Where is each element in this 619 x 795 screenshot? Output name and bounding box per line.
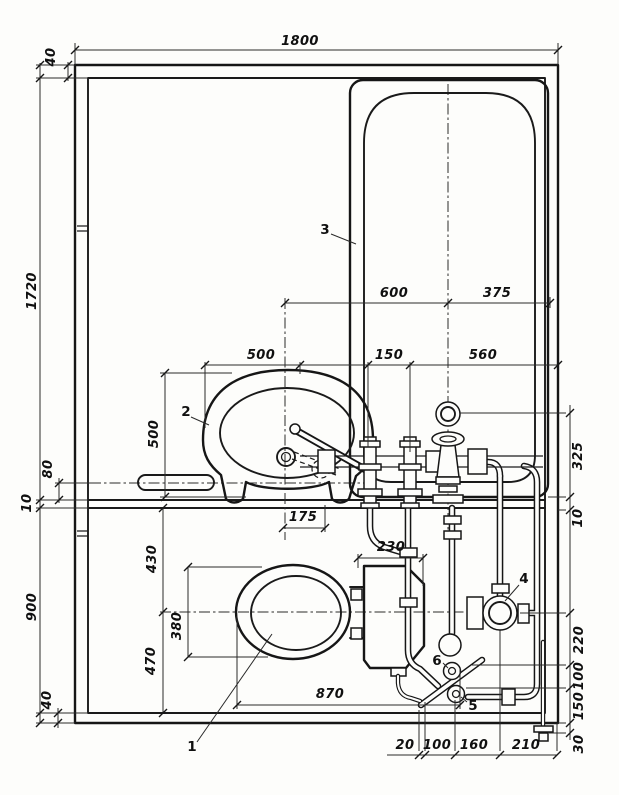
valve-6-body bbox=[444, 663, 461, 680]
ball-valve-body bbox=[439, 634, 461, 656]
basin-drain-inner bbox=[282, 453, 291, 462]
dim-30: 30 bbox=[572, 735, 587, 754]
floor-drain bbox=[467, 596, 529, 630]
dim-wall-bottom: 40 bbox=[40, 691, 55, 711]
dim-partition: 10 bbox=[20, 494, 35, 513]
callout-5-valve: 5 bbox=[468, 698, 477, 714]
extension-lines bbox=[36, 43, 566, 751]
pipe-union bbox=[468, 449, 487, 474]
dim-870: 870 bbox=[316, 687, 344, 702]
dim-600: 600 bbox=[380, 286, 408, 301]
pipe-union bbox=[400, 598, 417, 607]
cistern bbox=[364, 566, 424, 668]
dim-150: 150 bbox=[375, 348, 403, 363]
dim-175: 175 bbox=[289, 510, 317, 525]
pipe-union bbox=[502, 689, 515, 705]
callout-6-valve: 6 bbox=[432, 653, 441, 669]
bowl-inner bbox=[251, 576, 341, 650]
bathroom-plan-svg: 1800 40 1720 80 10 900 40 600 375 500 15… bbox=[0, 0, 619, 795]
dimension-text: 1800 40 1720 80 10 900 40 600 375 500 15… bbox=[20, 34, 587, 753]
pipe-union bbox=[444, 516, 461, 524]
dim-150-right: 150 bbox=[572, 692, 587, 720]
through-wall-tip bbox=[539, 733, 548, 741]
outer-wall bbox=[75, 65, 558, 723]
seat-hinge-bottom bbox=[351, 628, 362, 639]
dim-560: 560 bbox=[469, 348, 497, 363]
dim-210: 210 bbox=[512, 738, 540, 753]
dim-100-right: 100 bbox=[572, 662, 587, 690]
pipe-union bbox=[318, 450, 335, 473]
pipe-union bbox=[492, 584, 509, 593]
walls bbox=[75, 65, 558, 723]
dim-220: 220 bbox=[572, 626, 587, 654]
mixer-stem bbox=[437, 445, 459, 477]
partition-wall bbox=[88, 500, 545, 508]
drawing-page: 1800 40 1720 80 10 900 40 600 375 500 15… bbox=[0, 0, 619, 795]
dim-10-right: 10 bbox=[571, 509, 586, 528]
dim-500-h: 500 bbox=[247, 348, 275, 363]
wall-joint-marks bbox=[77, 226, 88, 536]
dim-bathroom-depth: 1720 bbox=[25, 272, 40, 310]
mixer-head bbox=[436, 402, 460, 426]
dim-470: 470 bbox=[144, 647, 159, 676]
dim-380: 380 bbox=[170, 612, 185, 640]
through-wall-fitting bbox=[534, 726, 553, 732]
dim-20: 20 bbox=[396, 738, 415, 753]
dim-overall-width: 1800 bbox=[281, 34, 319, 49]
dim-100-bottom: 100 bbox=[423, 738, 451, 753]
dim-wc-depth: 900 bbox=[25, 593, 40, 621]
plumbing-lower bbox=[370, 462, 553, 741]
dim-325: 325 bbox=[571, 442, 586, 470]
callout-2-washbasin: 2 bbox=[181, 404, 190, 420]
dim-430: 430 bbox=[145, 545, 160, 574]
drain-flange-left bbox=[467, 597, 483, 629]
dim-rail-offset: 80 bbox=[41, 460, 56, 479]
dim-160: 160 bbox=[460, 738, 488, 753]
callout-4-drain: 4 bbox=[519, 571, 528, 587]
dim-375: 375 bbox=[483, 286, 511, 301]
mixer-handwheel bbox=[432, 432, 464, 446]
callout-3-bathtub: 3 bbox=[320, 222, 329, 238]
callout-1-toilet: 1 bbox=[187, 739, 196, 755]
seat-hinge-top bbox=[351, 589, 362, 600]
lever-pivot bbox=[290, 424, 300, 434]
dim-wall-top: 40 bbox=[44, 48, 59, 68]
valve-5-body bbox=[448, 686, 465, 703]
toilet bbox=[236, 565, 424, 676]
callout-numbers: 1 2 3 4 5 6 bbox=[181, 222, 528, 755]
basin-drain-outer bbox=[277, 448, 295, 466]
dimension-ticks bbox=[36, 46, 574, 759]
dim-500-v: 500 bbox=[147, 420, 162, 448]
pipe-union bbox=[444, 531, 461, 539]
dim-230: 230 bbox=[377, 540, 405, 555]
